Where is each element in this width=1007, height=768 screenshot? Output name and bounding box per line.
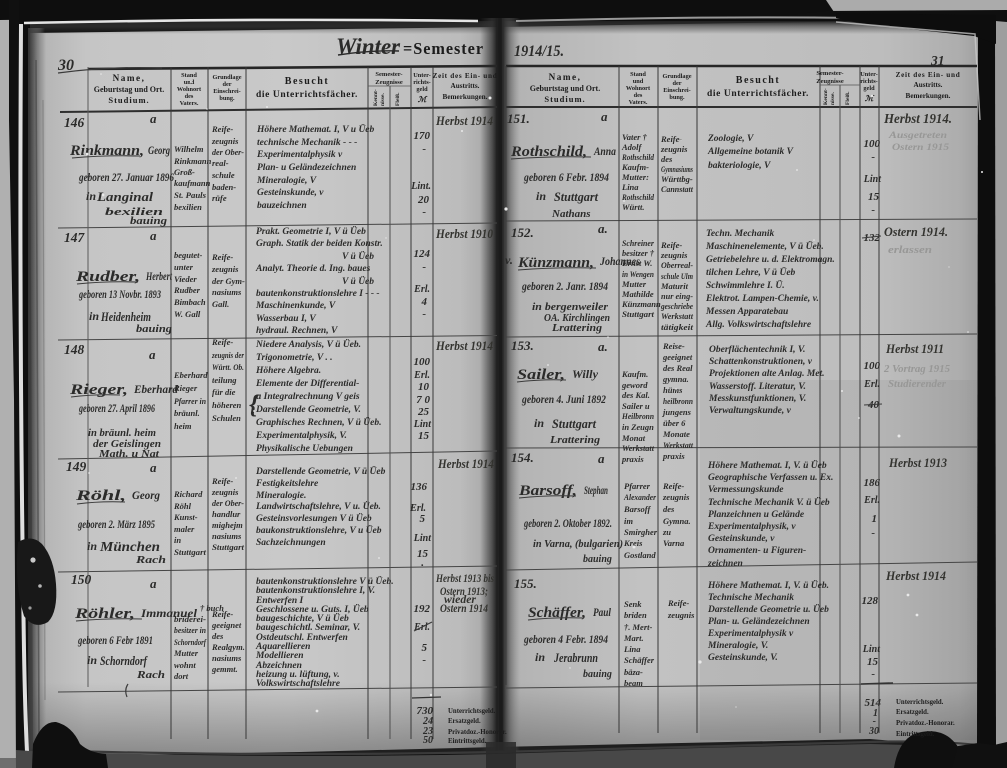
svg-text:W. Gall: W. Gall [174, 309, 201, 319]
svg-text:der Ober-: der Ober- [212, 498, 244, 508]
svg-text:in Wengen: in Wengen [622, 269, 654, 279]
svg-text:nisse.: nisse. [380, 92, 386, 106]
svg-text:und: und [184, 79, 195, 86]
svg-text:schule Ulm: schule Ulm [660, 271, 693, 281]
svg-text:handlur: handlur [212, 509, 241, 519]
svg-text:153.: 153. [511, 338, 534, 353]
svg-text:praxis: praxis [662, 451, 685, 461]
svg-text:Sachzeichnungen: Sachzeichnungen [256, 538, 326, 548]
svg-text:Techn. Mechanik: Techn. Mechanik [706, 229, 775, 239]
svg-text:Lint.: Lint. [410, 181, 431, 192]
svg-text:für die: für die [212, 387, 236, 397]
svg-text:Oberreal-: Oberreal- [661, 260, 693, 270]
svg-text:München: München [99, 539, 160, 554]
svg-text:bauing: bauing [130, 216, 167, 227]
svg-text:kaufmann: kaufmann [174, 178, 211, 188]
svg-text:Rothschild: Rothschild [621, 152, 654, 162]
svg-text:Physikalische Uebungen: Physikalische Uebungen [256, 444, 353, 454]
svg-text:geeignet: geeignet [662, 352, 693, 362]
svg-text:Mart.: Mart. [623, 633, 644, 643]
svg-text:Stephan: Stephan [584, 483, 608, 497]
svg-text:=Semester: =Semester [403, 39, 484, 58]
svg-text:Adolf: Adolf [621, 142, 643, 152]
svg-text:Austritts.: Austritts. [451, 82, 480, 90]
svg-text:bauzeichnen: bauzeichnen [257, 201, 307, 211]
svg-text:Messkunstfunktionen, V.: Messkunstfunktionen, V. [708, 394, 806, 404]
svg-text:4: 4 [421, 296, 428, 308]
svg-text:Gymnasiums: Gymnasiums [661, 164, 693, 174]
svg-text:Schattenkonstruktionen, v: Schattenkonstruktionen, v [709, 357, 813, 367]
svg-text:Barsoff: Barsoff [623, 504, 651, 514]
svg-text:20: 20 [417, 194, 430, 206]
svg-text:Bimbach: Bimbach [173, 297, 206, 307]
svg-text:St. Pauls: St. Pauls [174, 190, 207, 200]
svg-text:151.: 151. [507, 111, 530, 126]
svg-text:in: in [86, 189, 96, 203]
svg-text:Heilbronn: Heilbronn [621, 411, 654, 421]
svg-text:Ersatzgeld.: Ersatzgeld. [896, 709, 929, 716]
svg-text:Semester-: Semester- [816, 70, 843, 77]
svg-text:Kaufm-: Kaufm- [621, 162, 649, 172]
svg-text:geboren 2. Janr. 1894: geboren 2. Janr. 1894 [521, 281, 608, 293]
svg-text:50: 50 [423, 735, 433, 746]
svg-text:Eintrittsgeld.: Eintrittsgeld. [896, 731, 935, 738]
svg-text:Wasserbau I, V: Wasserbau I, V [256, 314, 316, 324]
svg-text:Mathilde: Mathilde [621, 289, 654, 299]
svg-text:Name,: Name, [549, 72, 582, 82]
svg-text:baden-: baden- [212, 182, 236, 192]
svg-text:Anna: Anna [593, 144, 616, 158]
svg-text:im: im [624, 516, 633, 526]
svg-text:nasiums: nasiums [212, 287, 242, 297]
svg-text:Herbst 1913 bis: Herbst 1913 bis [435, 571, 494, 585]
svg-text:Reife-: Reife- [660, 134, 682, 144]
svg-text:dort: dort [174, 671, 189, 681]
svg-text:Sailer u: Sailer u [622, 401, 650, 411]
svg-text:zeugnis: zeugnis [211, 487, 239, 497]
svg-text:Groß-: Groß- [174, 167, 195, 177]
svg-text:Rinkmann: Rinkmann [173, 156, 212, 166]
svg-text:Trigonometrie, V . .: Trigonometrie, V . . [256, 353, 333, 363]
svg-text:Erl.: Erl. [413, 370, 430, 381]
svg-text:Schorndorf: Schorndorf [174, 637, 207, 647]
svg-text:a: a [150, 576, 157, 591]
svg-text:in: in [536, 189, 546, 203]
svg-text:u Integralrechnung V geis: u Integralrechnung V geis [256, 392, 360, 402]
svg-text:geboren 13 Novbr. 1893: geboren 13 Novbr. 1893 [78, 289, 161, 301]
svg-text:Stuttgart: Stuttgart [552, 417, 597, 431]
svg-text:Analyt. Theorie d. Ing. baues: Analyt. Theorie d. Ing. baues [255, 264, 371, 274]
svg-text:1914/15.: 1914/15. [514, 43, 564, 60]
svg-text:geschriebe: geschriebe [660, 301, 693, 311]
svg-text:Rieger,: Rieger, [69, 382, 128, 398]
svg-text:Ostern 1915: Ostern 1915 [892, 143, 949, 153]
svg-text:Wasserstoff. Literatur, V.: Wasserstoff. Literatur, V. [709, 382, 806, 392]
svg-text:bung.: bung. [669, 94, 685, 101]
svg-text:in bräunl. heim: in bräunl. heim [88, 428, 156, 439]
svg-text:nasiums: nasiums [212, 653, 242, 663]
svg-text:150: 150 [71, 572, 92, 587]
svg-text:-: - [422, 308, 426, 320]
svg-text:2 Vortrag 1915: 2 Vortrag 1915 [883, 364, 950, 375]
svg-text:155.: 155. [514, 576, 537, 591]
svg-text:Willy: Willy [572, 367, 599, 381]
svg-text:100: 100 [864, 360, 881, 372]
svg-text:Stuttgart: Stuttgart [554, 190, 599, 204]
svg-text:Lint: Lint [862, 644, 881, 655]
svg-text:Experimentalphysik v: Experimentalphysik v [256, 150, 343, 160]
svg-text:Stuttgart: Stuttgart [622, 309, 655, 319]
svg-text:ℳ: ℳ [865, 94, 875, 103]
svg-text:Allgemeine botanik V: Allgemeine botanik V [707, 147, 794, 157]
svg-text:Geburtstag und Ort.: Geburtstag und Ort. [530, 84, 600, 93]
svg-text:a: a [150, 111, 157, 126]
svg-text:Experimentalphysik v: Experimentalphysik v [707, 629, 794, 639]
svg-text:a: a [598, 451, 605, 466]
svg-text:a.: a. [598, 221, 608, 236]
svg-text:der: der [672, 80, 681, 87]
svg-text:Gesteinskunde, v: Gesteinskunde, v [257, 188, 324, 198]
svg-text:und: und [633, 78, 644, 85]
svg-text:tätigkeit: tätigkeit [661, 322, 694, 332]
svg-text:in: in [89, 309, 99, 323]
svg-text:Besucht: Besucht [285, 76, 329, 87]
svg-text:in: in [534, 416, 544, 430]
svg-text:Reife-: Reife- [667, 598, 689, 608]
svg-text:Gesteinskunde, V.: Gesteinskunde, V. [708, 653, 778, 663]
svg-text:Stand: Stand [181, 72, 197, 79]
svg-text:geboren 2. Oktober 1892.: geboren 2. Oktober 1892. [523, 518, 612, 530]
svg-text:Werkstatt: Werkstatt [622, 443, 655, 453]
svg-text:Reife-: Reife- [211, 476, 233, 486]
svg-text:Gostland: Gostland [624, 550, 656, 560]
svg-text:Lrattering: Lrattering [549, 435, 600, 446]
svg-text:real-: real- [212, 158, 229, 168]
svg-text:31: 31 [930, 53, 945, 68]
svg-text:jungens: jungens [661, 407, 692, 417]
svg-text:154.: 154. [511, 450, 534, 465]
svg-text:-: - [871, 668, 875, 680]
svg-text:bauing: bauing [583, 669, 612, 680]
svg-text:briderei-: briderei- [174, 614, 206, 624]
svg-text:des: des [661, 154, 673, 164]
svg-text:Barsoff,: Barsoff, [518, 483, 577, 499]
svg-text:Kunst-: Kunst- [173, 512, 198, 522]
svg-text:des: des [212, 631, 224, 641]
svg-text:zeugnis: zeugnis [660, 144, 688, 154]
svg-text:Erl.: Erl. [863, 495, 880, 506]
svg-text:Messen Apparatebau: Messen Apparatebau [705, 307, 788, 317]
svg-text:Allg. Volkswirtschaftslehre: Allg. Volkswirtschaftslehre [705, 320, 812, 330]
svg-text:Reife-: Reife- [660, 240, 682, 250]
svg-text:hydraul. Rechnen, V: hydraul. Rechnen, V [256, 326, 338, 336]
svg-text:maler: maler [174, 524, 195, 534]
svg-text:Rudber: Rudber [173, 285, 201, 295]
svg-text:Vaters.: Vaters. [629, 99, 648, 106]
svg-text:1: 1 [872, 513, 878, 525]
svg-text:Realgym.: Realgym. [211, 642, 245, 652]
svg-text:baugeschichtl. Seminar, V.: baugeschichtl. Seminar, V. [256, 623, 360, 633]
svg-text:Eberhard: Eberhard [173, 370, 208, 380]
svg-text:Georg: Georg [148, 143, 170, 157]
svg-text:Reife-: Reife- [211, 124, 233, 134]
svg-text:ℳ: ℳ [418, 95, 428, 104]
svg-text:192: 192 [414, 603, 431, 615]
svg-text:besitzer in: besitzer in [174, 625, 206, 635]
svg-text:v.: v. [505, 253, 513, 267]
svg-text:praxis: praxis [621, 454, 644, 464]
svg-text:15: 15 [868, 191, 880, 203]
svg-text:Technische Mechanik: Technische Mechanik [708, 593, 794, 603]
svg-text:der Gym-: der Gym- [212, 276, 245, 286]
svg-text:in: in [87, 653, 97, 667]
svg-text:Privatdoz.-Honorar.: Privatdoz.-Honorar. [448, 729, 507, 736]
svg-text:richts-: richts- [860, 78, 878, 85]
svg-text:Rach: Rach [135, 554, 166, 566]
svg-text:Reise-: Reise- [662, 341, 685, 351]
svg-text:Maschinenkunde, V: Maschinenkunde, V [255, 301, 336, 311]
svg-text:Fleiß.: Fleiß. [395, 92, 401, 106]
svg-text:10: 10 [418, 381, 430, 393]
svg-text:Geographische Verfassen u. Ex.: Geographische Verfassen u. Ex. [708, 473, 833, 483]
svg-text:begutet-: begutet- [174, 250, 202, 260]
svg-text:bräunl.: bräunl. [174, 408, 200, 418]
svg-text:wohnt: wohnt [174, 660, 196, 670]
svg-text:die Unterrichtsfächer.: die Unterrichtsfächer. [256, 90, 358, 100]
svg-text:Elektrot. Lampen-Chemie, v.: Elektrot. Lampen-Chemie, v. [705, 294, 819, 304]
svg-text:Vermessungskunde: Vermessungskunde [708, 485, 784, 495]
svg-text:Modellieren: Modellieren [255, 651, 304, 661]
svg-text:25: 25 [417, 406, 430, 418]
svg-text:128: 128 [862, 595, 879, 607]
svg-text:152.: 152. [511, 225, 534, 240]
svg-text:Mineralogie, V.: Mineralogie, V. [707, 641, 768, 651]
svg-text:Unter-: Unter- [860, 71, 878, 78]
svg-text:5: 5 [422, 642, 428, 654]
svg-text:Künzmann,: Künzmann, [517, 255, 594, 271]
svg-text:über 6: über 6 [663, 418, 686, 428]
svg-text:Erl.: Erl. [413, 284, 430, 295]
svg-text:Stuttgart: Stuttgart [212, 542, 245, 552]
svg-text:Unter-: Unter- [413, 72, 431, 79]
svg-text:Stuttgart: Stuttgart [174, 547, 207, 557]
svg-text:Herbst 1911: Herbst 1911 [885, 341, 944, 356]
svg-text:teilung: teilung [212, 375, 237, 385]
svg-text:Grundlage: Grundlage [662, 73, 691, 80]
svg-text:hüms: hüms [663, 385, 683, 395]
svg-text:Geburtstag und Ort.: Geburtstag und Ort. [94, 85, 164, 94]
svg-text:Vater †: Vater † [622, 132, 648, 142]
svg-text:Eintrittsgeld.: Eintrittsgeld. [448, 738, 487, 745]
svg-text:a: a [150, 228, 157, 243]
svg-text:die Unterrichtsfächer.: die Unterrichtsfächer. [707, 89, 809, 99]
svg-text:Volkswirtschaftslehre: Volkswirtschaftslehre [256, 679, 341, 689]
svg-text:Lrattering: Lrattering [551, 323, 602, 334]
svg-text:Schäffer: Schäffer [624, 655, 655, 665]
svg-text:Maturit: Maturit [660, 281, 689, 291]
svg-text:Ornamenten- u Figuren-: Ornamenten- u Figuren- [708, 546, 806, 556]
svg-text:Einschrei-: Einschrei- [663, 87, 691, 94]
svg-text:Wilhelm: Wilhelm [174, 144, 204, 154]
svg-text:186: 186 [864, 477, 881, 489]
svg-text:Stand: Stand [630, 71, 646, 78]
svg-text:Gall.: Gall. [212, 299, 229, 309]
svg-text:Ersatzgeld.: Ersatzgeld. [448, 718, 481, 725]
svg-text:170: 170 [414, 130, 431, 142]
svg-text:Unterrichtsgeld.: Unterrichtsgeld. [896, 699, 944, 706]
svg-text:Alexander: Alexander [623, 492, 656, 502]
svg-text:Monate: Monate [662, 429, 690, 439]
svg-text:-: - [871, 151, 875, 163]
svg-text:100: 100 [414, 356, 431, 368]
svg-text:Bemerkungen.: Bemerkungen. [443, 93, 488, 101]
svg-text:Rach: Rach [136, 669, 165, 681]
svg-text:Austritts.: Austritts. [914, 81, 943, 89]
svg-text:erlassen: erlassen [888, 245, 933, 256]
svg-text:zeugnis der: zeugnis der [211, 350, 244, 360]
svg-text:Schorndorf: Schorndorf [100, 654, 148, 668]
svg-text:schule: schule [211, 170, 235, 180]
svg-text:Höhere Algebra.: Höhere Algebra. [255, 366, 321, 376]
svg-text:Mineralogie.: Mineralogie. [255, 491, 306, 501]
svg-text:Name,: Name, [113, 73, 146, 83]
svg-text:geboren 27. April 1896: geboren 27. April 1896 [78, 403, 155, 415]
svg-text:136: 136 [411, 481, 428, 493]
svg-text:Besucht: Besucht [736, 75, 780, 86]
svg-text:147: 147 [64, 230, 86, 245]
svg-text:a: a [150, 460, 157, 475]
svg-text:des Real: des Real [663, 363, 693, 373]
svg-text:Mineralogie, V: Mineralogie, V [256, 176, 317, 186]
svg-text:5: 5 [420, 513, 426, 525]
svg-text:Ausgetreten: Ausgetreten [888, 131, 947, 141]
svg-text:-: - [422, 261, 426, 273]
svg-text:Unterrichtsgeld.: Unterrichtsgeld. [448, 708, 496, 715]
svg-text:bautenkonstruktionslehre I, V.: bautenkonstruktionslehre I, V. [256, 586, 375, 596]
svg-text:Pfarrer in: Pfarrer in [174, 396, 206, 406]
svg-text:Plan- u Geländezeichnen: Plan- u Geländezeichnen [257, 163, 356, 173]
svg-text:geboren 2. März 1895: geboren 2. März 1895 [77, 519, 155, 531]
svg-text:Reife-: Reife- [211, 337, 233, 347]
svg-text:beam: beam [624, 678, 643, 688]
svg-text:Fleiß.: Fleiß. [845, 91, 851, 105]
svg-text:bakteriologie, V: bakteriologie, V [708, 161, 771, 171]
svg-text:-: - [422, 654, 426, 666]
svg-text:geeignet: geeignet [211, 620, 242, 630]
svg-text:briden: briden [624, 610, 647, 620]
svg-text:Röhl: Röhl [173, 501, 192, 511]
svg-text:gemmt.: gemmt. [211, 664, 238, 674]
svg-text:bauing: bauing [136, 324, 172, 335]
svg-text:Herbst 1914.: Herbst 1914. [883, 112, 952, 127]
svg-text:15: 15 [418, 430, 430, 442]
svg-text:Getriebelehre u. d. Elektromag: Getriebelehre u. d. Elektromagn. [706, 255, 835, 265]
svg-text:Gymna.: Gymna. [663, 516, 691, 526]
svg-text:nasiums: nasiums [212, 531, 242, 541]
svg-text:Privatdoz.-Honorar.: Privatdoz.-Honorar. [896, 720, 955, 727]
svg-text:nisse.: nisse. [830, 91, 836, 105]
svg-text:Vieder: Vieder [174, 274, 197, 284]
svg-text:a.: a. [598, 339, 608, 354]
svg-text:Württ. Ob.: Württ. Ob. [212, 362, 244, 372]
svg-text:des: des [663, 504, 675, 514]
svg-text:unter: unter [174, 262, 194, 272]
svg-text:Lint: Lint [413, 533, 432, 544]
svg-text:geboren 4 Febr. 1894: geboren 4 Febr. 1894 [523, 634, 608, 646]
svg-text:Studierender: Studierender [888, 379, 946, 390]
svg-text:bung.: bung. [219, 95, 235, 102]
svg-text:Studium.: Studium. [544, 94, 585, 104]
svg-text:Nathans: Nathans [551, 208, 591, 220]
svg-text:124: 124 [414, 248, 431, 260]
svg-text:a: a [149, 347, 156, 362]
svg-text:Reife-: Reife- [662, 481, 684, 491]
svg-text:heilbronn: heilbronn [663, 396, 693, 406]
svg-text:Zeugnisse: Zeugnisse [816, 78, 844, 85]
svg-text:Verwaltungskunde, v: Verwaltungskunde, v [709, 406, 792, 416]
svg-text:Herbst 1914: Herbst 1914 [435, 113, 493, 128]
svg-text:in: in [87, 539, 97, 553]
svg-text:146: 146 [64, 115, 85, 130]
svg-text:Cannstatt: Cannstatt [661, 184, 694, 194]
svg-text:Math. u Nat: Math. u Nat [98, 449, 161, 460]
svg-text:Vaters.: Vaters. [180, 100, 199, 107]
svg-text:Monat: Monat [621, 433, 646, 443]
svg-text:Künzmann: Künzmann [621, 299, 661, 309]
svg-text:Eberhard: Eberhard [133, 382, 179, 396]
svg-text:in Zeugn: in Zeugn [622, 422, 654, 432]
svg-text:mighejm: mighejm [212, 520, 243, 530]
svg-text:Herbst 1913: Herbst 1913 [888, 455, 947, 470]
svg-text:-: - [422, 143, 426, 155]
svg-text:Herbert: Herbert [145, 269, 172, 283]
svg-text:100: 100 [864, 138, 881, 150]
svg-text:Ernst W.: Ernst W. [621, 258, 652, 268]
svg-text:Lint: Lint [863, 174, 882, 185]
svg-text:bäza-: bäza- [624, 667, 643, 677]
svg-text:Elemente der Differential-: Elemente der Differential- [255, 379, 359, 389]
svg-text:Lina: Lina [621, 182, 639, 192]
svg-text:richts-: richts- [413, 79, 431, 86]
svg-text:30: 30 [868, 726, 879, 737]
svg-text:.: . [421, 557, 424, 569]
svg-text:höheren: höheren [212, 400, 242, 410]
svg-text:des: des [185, 93, 194, 100]
svg-text:Mutter:: Mutter: [621, 172, 649, 182]
svg-text:des Kal.: des Kal. [622, 390, 650, 400]
svg-text:gymna.: gymna. [662, 374, 689, 384]
svg-text:heim: heim [174, 421, 192, 431]
svg-text:Kennt-: Kennt- [373, 89, 379, 106]
svg-text:Projektionen alte Anlag. Met.: Projektionen alte Anlag. Met. [709, 369, 825, 379]
svg-text:Württ.: Württ. [622, 202, 644, 212]
svg-text:Zeugnisse: Zeugnisse [375, 79, 403, 86]
svg-text:der: der [222, 81, 231, 88]
svg-text:zu: zu [662, 527, 671, 537]
svg-text:in: in [535, 650, 545, 664]
svg-text:Herbst 1914: Herbst 1914 [437, 456, 494, 471]
svg-text:Einschrei-: Einschrei- [213, 88, 241, 95]
svg-text:geld: geld [863, 85, 875, 92]
svg-text:zeugnis: zeugnis [660, 250, 688, 260]
svg-text:nur eing-: nur eing- [661, 291, 693, 301]
svg-text:Darstellende Geometrie, V.: Darstellende Geometrie, V. [255, 405, 361, 415]
svg-text:Werkstatt: Werkstatt [661, 311, 694, 321]
svg-text:zeugnis: zeugnis [662, 492, 690, 502]
svg-text:geld: geld [416, 86, 428, 93]
svg-text:Smirgher: Smirgher [624, 527, 658, 537]
svg-text:Rothschild,: Rothschild, [510, 144, 587, 160]
